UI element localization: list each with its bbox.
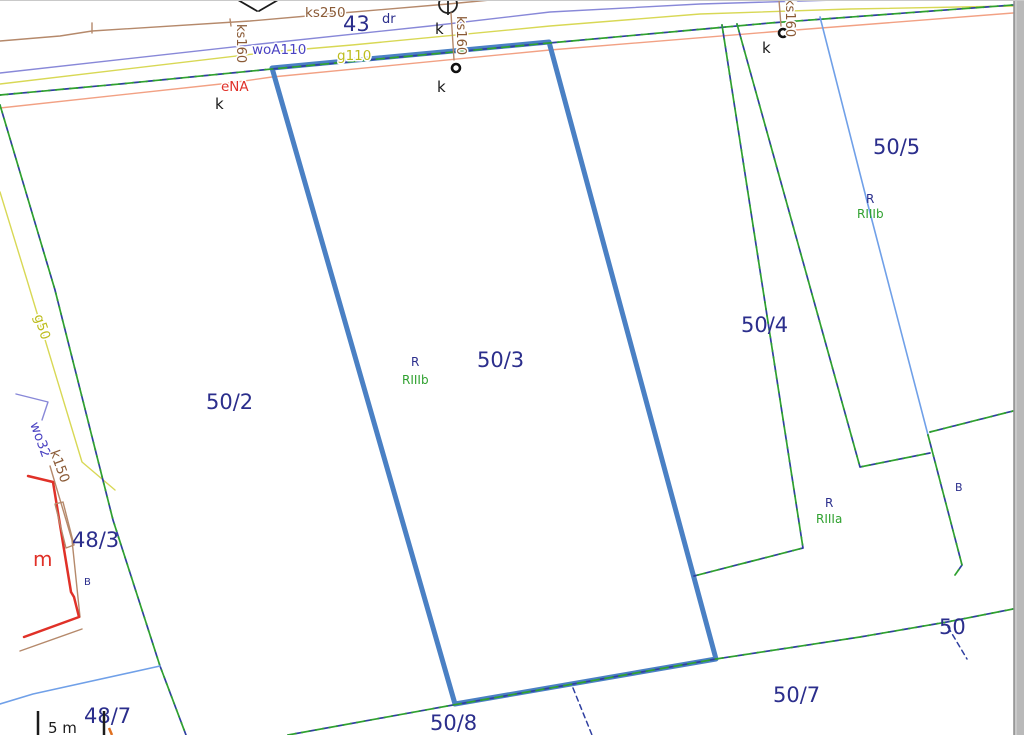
- landclass-b: B: [955, 481, 963, 494]
- parcel-label-48-3: 48/3: [72, 528, 119, 552]
- label-ks250: ks250: [305, 5, 346, 21]
- cross-symbol: [238, 0, 278, 11]
- cadastral-map-canvas[interactable]: ks250 woA110 g110 eNA ks160 ks160 ks160 …: [0, 0, 1024, 735]
- label-k-point: k: [215, 95, 224, 113]
- label-k-point: k: [762, 39, 771, 57]
- parcel-50-3-highlight[interactable]: [272, 42, 716, 704]
- gas-line-g50: [0, 192, 115, 490]
- label-road-dr: dr: [382, 12, 396, 27]
- label-g50: g50: [30, 312, 53, 341]
- building-label-m: m: [33, 547, 52, 571]
- parcel-label-48-7: 48/7: [84, 704, 131, 728]
- parcel-label-50: 50: [939, 615, 966, 639]
- label-k-point: k: [435, 20, 444, 38]
- landclass-riiia: RIIIa: [816, 512, 842, 526]
- left-boundary-green: [0, 105, 186, 735]
- map-viewport: ks250 woA110 g110 eNA ks160 ks160 ks160 …: [0, 0, 1024, 735]
- parcel-50-5-boundary: [820, 17, 928, 435]
- parcel-48-7-boundary: [0, 666, 160, 704]
- road-boundary-navy: [0, 5, 1013, 95]
- parcel-50-4-east-green: [737, 24, 930, 467]
- scale-label: 5 m: [48, 719, 77, 735]
- label-k-point: k: [437, 78, 446, 96]
- parcel-label-50-5: 50/5: [873, 135, 920, 159]
- sewer-riser-line: [230, 19, 231, 26]
- landclass-r: R: [825, 496, 833, 510]
- water-line-wo32: [16, 394, 48, 420]
- label-ks160: ks160: [782, 0, 797, 37]
- parcel-50-5-lower-green: [928, 435, 962, 575]
- parcel-50-4-east-navy: [737, 24, 930, 467]
- parcel-label-50-7: 50/7: [773, 683, 820, 707]
- landclass-b: B: [84, 577, 91, 588]
- landclass-r: R: [411, 355, 419, 369]
- parcel-label-50-8: 50/8: [430, 711, 477, 735]
- parcel-label-50-4: 50/4: [741, 313, 788, 337]
- parcel-label-50-2: 50/2: [206, 390, 253, 414]
- label-g110: g110: [337, 48, 371, 64]
- parcel-label-43: 43: [343, 12, 370, 36]
- parcel-50-8-east-boundary: [573, 688, 592, 735]
- parcel-50-4-west-green: [694, 25, 803, 576]
- sewer-line-k150-lower: [20, 629, 82, 651]
- utility-point-symbol: [452, 64, 460, 72]
- label-woA110: woA110: [252, 42, 306, 58]
- label-eNA: eNA: [221, 79, 249, 95]
- label-ks160: ks160: [453, 16, 468, 55]
- landclass-r: R: [866, 192, 874, 206]
- landclass-riiib: RIIIb: [402, 373, 429, 387]
- manhole-symbol: [439, 0, 457, 15]
- landclass-riiib: RIIIb: [857, 207, 884, 221]
- label-ks160: ks160: [233, 24, 248, 63]
- parcel-label-50-3: 50/3: [477, 348, 524, 372]
- parcel-50-4-west-navy: [694, 25, 803, 576]
